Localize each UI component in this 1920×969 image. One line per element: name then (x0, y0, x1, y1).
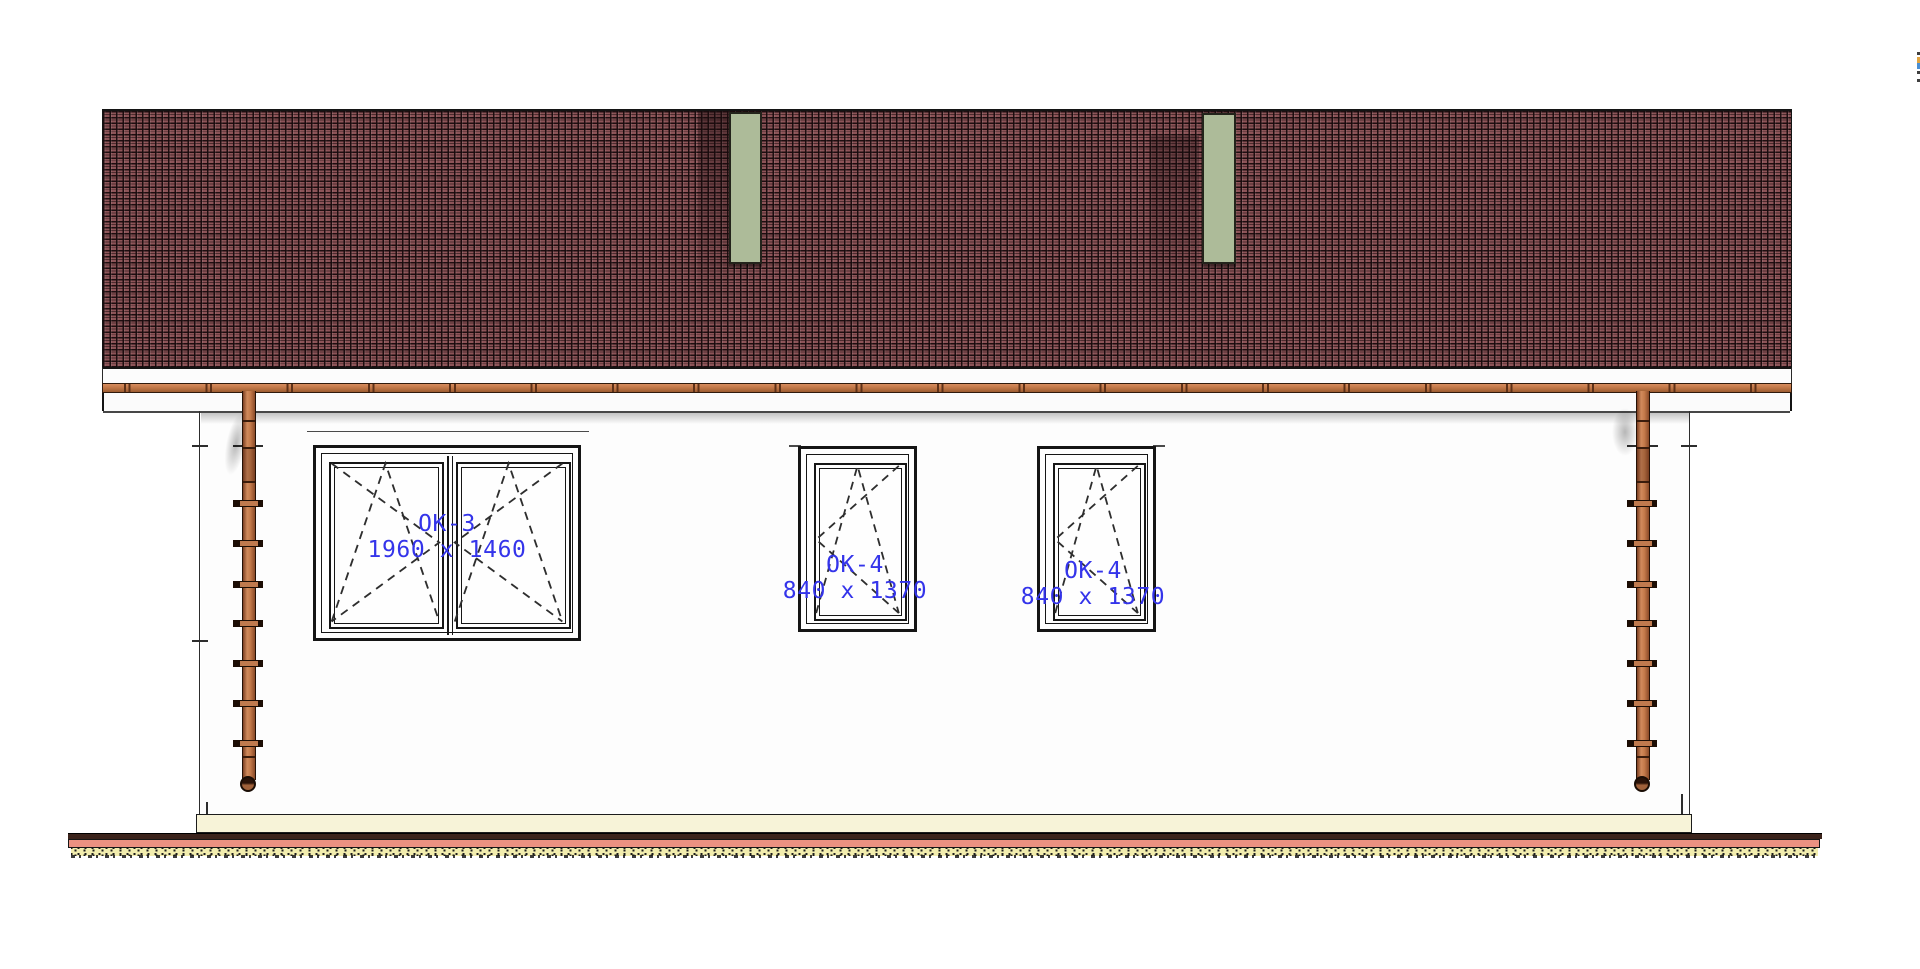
window-tag-size: 840 x 1370 (783, 578, 927, 604)
pipe-clamp (1627, 581, 1657, 588)
soffit (102, 393, 1792, 411)
pipe-clamp (233, 700, 263, 707)
window-tag-ok3[interactable]: OK-3 1960 x 1460 (368, 511, 527, 563)
level-tick (1681, 445, 1697, 447)
elevation-drawing-canvas: OK-3 1960 x 1460 OK-4 840 x 1370 OK-4 84… (0, 0, 1920, 969)
window-tag-id: OK-4 (783, 552, 927, 578)
pipe-joint (1637, 420, 1650, 422)
plinth-tick (206, 802, 208, 814)
plinth (196, 814, 1692, 833)
pipe-clamp (1627, 740, 1657, 747)
pipe-clamp (233, 581, 263, 588)
pipe-clamp (1627, 620, 1657, 627)
ground-hatch-edge (71, 855, 1818, 858)
roof-shade-streak (1151, 136, 1199, 346)
wall-corner-right (1689, 411, 1691, 815)
pipe-joint (243, 756, 256, 758)
gutter[interactable] (102, 383, 1792, 394)
window-tag-size: 840 x 1370 (1021, 584, 1165, 610)
window-tag-id: OK-4 (1021, 558, 1165, 584)
edge-icon (1917, 71, 1920, 74)
window-ok4-middle[interactable] (798, 446, 917, 632)
sill-level-tick (192, 640, 208, 642)
level-tick (192, 445, 208, 447)
edge-icon (1917, 63, 1920, 69)
roof-shade-streak (698, 111, 730, 326)
pipe-clamp (233, 740, 263, 747)
pipe-sleeve (243, 447, 256, 483)
edge-icon (1917, 52, 1920, 55)
pipe-clamp (233, 660, 263, 667)
plinth-tick (1681, 794, 1683, 814)
ground-band (68, 839, 1820, 849)
roof-vent-band-right[interactable] (1202, 113, 1236, 264)
window-tag-id: OK-3 (368, 511, 527, 537)
pipe-clamp (233, 500, 263, 507)
pipe-clamp (1627, 660, 1657, 667)
pipe-clamp (233, 540, 263, 547)
wall-corner-left (199, 411, 201, 815)
downpipe-right[interactable] (1636, 391, 1651, 780)
window-tag-ok4-right[interactable]: OK-4 840 x 1370 (1021, 558, 1165, 610)
pipe-clamp (1627, 700, 1657, 707)
roof-tiles[interactable] (102, 109, 1792, 367)
pipe-sleeve (1637, 447, 1650, 483)
screen-edge-icons[interactable] (1917, 52, 1920, 86)
window-tag-size: 1960 x 1460 (368, 537, 527, 563)
roof-vent-band-left[interactable] (729, 112, 762, 264)
eaves-shadow (201, 413, 1689, 424)
fascia-board (102, 367, 1792, 383)
lintel-line (307, 431, 589, 433)
edge-icon (1917, 79, 1920, 82)
pipe-joint (1637, 756, 1650, 758)
pipe-clamp (1627, 540, 1657, 547)
pipe-outlet (1634, 776, 1650, 792)
pipe-clamp (233, 620, 263, 627)
downpipe-left[interactable] (242, 391, 257, 780)
pipe-outlet (240, 776, 256, 792)
pipe-joint (243, 420, 256, 422)
window-tag-ok4-middle[interactable]: OK-4 840 x 1370 (783, 552, 927, 604)
downpipe-shadow (1612, 408, 1638, 456)
pipe-clamp (1627, 500, 1657, 507)
